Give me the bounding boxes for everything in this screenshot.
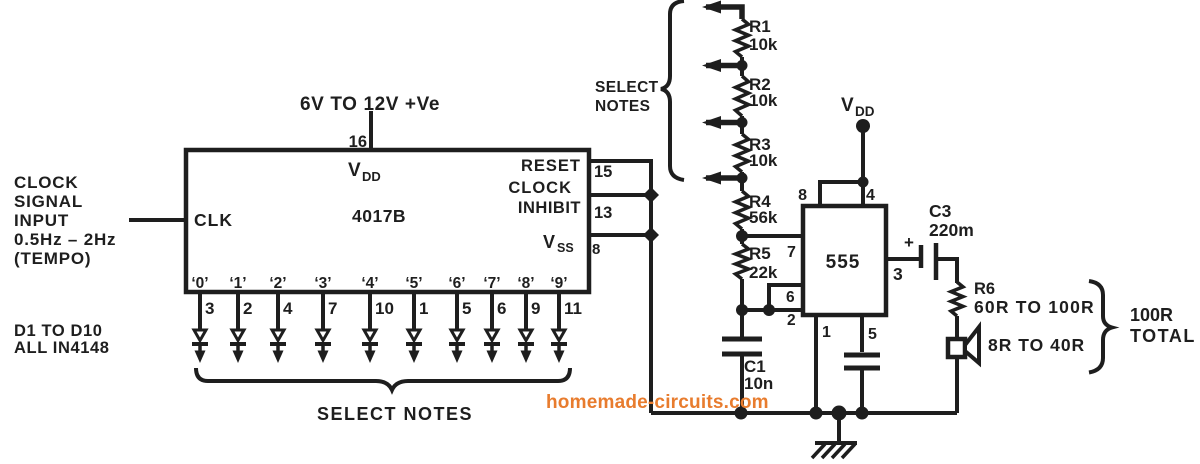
svg-text:22k: 22k [749, 263, 778, 282]
svg-text:6: 6 [497, 299, 506, 318]
svg-text:SS: SS [557, 241, 574, 255]
svg-text:SIGNAL: SIGNAL [14, 192, 83, 211]
svg-text:INPUT: INPUT [14, 211, 69, 230]
svg-text:INHIBIT: INHIBIT [518, 199, 581, 217]
svg-text:‘7’: ‘7’ [483, 275, 500, 292]
svg-text:‘8’: ‘8’ [517, 275, 534, 292]
svg-text:RESET: RESET [521, 157, 581, 175]
svg-text:10k: 10k [749, 91, 778, 110]
svg-text:DD: DD [362, 169, 381, 184]
svg-text:8: 8 [798, 187, 807, 204]
svg-text:10k: 10k [749, 35, 778, 54]
svg-text:5: 5 [868, 326, 877, 343]
svg-text:1: 1 [419, 299, 428, 318]
svg-text:6: 6 [786, 289, 795, 306]
svg-text:1: 1 [822, 324, 831, 341]
svg-text:4: 4 [283, 299, 293, 318]
svg-text:60R TO 100R: 60R TO 100R [974, 297, 1095, 317]
svg-text:10: 10 [375, 299, 394, 318]
svg-text:SELECT: SELECT [595, 79, 659, 96]
svg-text:C3: C3 [929, 201, 952, 221]
svg-text:2: 2 [243, 299, 252, 318]
svg-text:‘6’: ‘6’ [448, 275, 465, 292]
svg-text:(TEMPO): (TEMPO) [14, 249, 91, 268]
svg-text:4: 4 [866, 187, 875, 204]
svg-text:‘2’: ‘2’ [269, 275, 286, 292]
svg-text:‘4’: ‘4’ [361, 275, 378, 292]
svg-text:220m: 220m [929, 220, 974, 240]
svg-text:R5: R5 [749, 244, 771, 263]
svg-text:DD: DD [855, 104, 875, 119]
svg-text:11: 11 [564, 299, 582, 318]
svg-text:56k: 56k [749, 208, 778, 227]
svg-text:9: 9 [531, 299, 540, 318]
svg-text:SELECT NOTES: SELECT NOTES [317, 404, 473, 424]
svg-text:V: V [348, 160, 361, 181]
svg-text:+: + [904, 233, 914, 252]
svg-text:R1: R1 [749, 17, 771, 36]
svg-text:5: 5 [462, 299, 471, 318]
svg-text:homemade-circuits.com: homemade-circuits.com [546, 392, 769, 413]
svg-text:10k: 10k [749, 151, 778, 170]
svg-text:4017B: 4017B [352, 206, 406, 226]
svg-text:V: V [841, 95, 854, 116]
svg-text:‘1’: ‘1’ [229, 275, 246, 292]
svg-text:0.5Hz – 2Hz: 0.5Hz – 2Hz [14, 230, 116, 249]
svg-text:CLOCK: CLOCK [508, 179, 572, 197]
svg-text:8R TO 40R: 8R TO 40R [988, 335, 1085, 355]
svg-text:NOTES: NOTES [595, 98, 650, 115]
svg-text:CLOCK: CLOCK [14, 173, 78, 192]
svg-text:13: 13 [594, 204, 612, 222]
svg-text:CLK: CLK [194, 210, 233, 230]
svg-text:R6: R6 [974, 280, 995, 298]
svg-text:16: 16 [349, 133, 367, 151]
svg-text:15: 15 [594, 163, 612, 181]
svg-text:7: 7 [787, 244, 796, 261]
svg-text:‘9’: ‘9’ [550, 275, 567, 292]
svg-text:‘5’: ‘5’ [405, 275, 422, 292]
svg-text:8: 8 [592, 241, 600, 258]
svg-text:2: 2 [787, 312, 796, 329]
svg-text:100R: 100R [1130, 305, 1173, 325]
svg-text:7: 7 [328, 299, 337, 318]
svg-text:D1 TO D10: D1 TO D10 [14, 322, 103, 340]
svg-text:‘3’: ‘3’ [314, 275, 331, 292]
svg-text:10n: 10n [744, 374, 773, 393]
svg-text:3: 3 [893, 264, 903, 284]
svg-text:555: 555 [826, 252, 861, 273]
svg-text:ALL IN4148: ALL IN4148 [14, 339, 110, 357]
svg-text:TOTAL: TOTAL [1130, 326, 1196, 346]
svg-text:V: V [543, 232, 555, 252]
svg-text:‘0’: ‘0’ [191, 275, 208, 292]
svg-text:3: 3 [205, 299, 214, 318]
